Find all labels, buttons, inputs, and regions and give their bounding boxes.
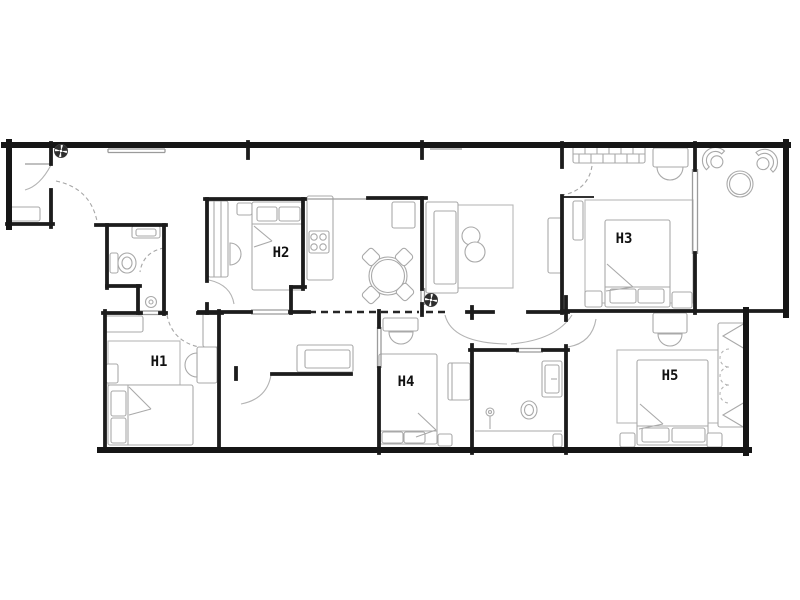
door-swing (241, 375, 271, 404)
furniture (707, 433, 722, 447)
furniture (638, 289, 664, 303)
chair-icon (185, 353, 197, 377)
furniture (197, 347, 217, 383)
furniture (653, 313, 687, 333)
furniture (392, 202, 415, 228)
furniture (573, 201, 583, 240)
furniture-circle (465, 242, 485, 262)
furniture-circle (311, 244, 317, 250)
furniture (305, 350, 350, 368)
door-swing (568, 319, 596, 347)
furniture (404, 432, 425, 443)
furniture-circle (311, 234, 317, 240)
furniture (111, 418, 126, 443)
door-swing-dashed (563, 166, 592, 195)
chair-icon (658, 334, 682, 346)
furniture (383, 318, 418, 331)
door-swing (25, 165, 51, 190)
door-swing-dashed (167, 315, 199, 347)
furniture (642, 428, 669, 442)
furniture (106, 364, 118, 383)
room-label-h4: H4 (398, 374, 415, 390)
furniture (610, 289, 636, 303)
rug (457, 205, 513, 288)
furniture (9, 207, 40, 221)
furniture (553, 434, 562, 447)
toilet-icon (525, 405, 534, 416)
furniture (434, 211, 456, 284)
furniture-circle (149, 300, 153, 304)
furniture (208, 201, 228, 277)
furniture (672, 292, 692, 308)
floorplan: H1H2H3H4H5 (0, 0, 800, 600)
furniture (110, 253, 118, 273)
furniture (279, 207, 300, 221)
room-label-h3: H3 (616, 231, 633, 247)
furniture (438, 434, 452, 446)
furniture (718, 323, 746, 427)
rug (108, 341, 180, 385)
chair-icon (389, 332, 413, 344)
room-label-h1: H1 (151, 354, 168, 370)
floorplan-svg: H1H2H3H4H5 (0, 0, 800, 600)
furniture (672, 428, 705, 442)
toilet-icon (122, 257, 132, 269)
room-label-h2: H2 (273, 245, 290, 261)
door-swing-dashed (140, 248, 164, 272)
furniture (105, 316, 143, 332)
door-swing (511, 315, 572, 344)
furniture (203, 313, 219, 347)
furniture (585, 291, 602, 307)
chair-icon (657, 167, 683, 180)
furniture (448, 363, 470, 400)
room-label-h5: H5 (662, 368, 679, 384)
ceiling-fan-icon (423, 292, 439, 308)
furniture (136, 229, 156, 236)
furniture (382, 432, 403, 443)
floorplan-page: H1H2H3H4H5 (0, 0, 800, 600)
furniture (237, 203, 252, 215)
chair-icon (230, 243, 241, 265)
door-swing (209, 280, 234, 304)
door-swing (445, 315, 507, 344)
furniture (653, 148, 688, 167)
furniture-circle (730, 174, 751, 195)
furniture (111, 391, 126, 416)
furniture-circle (320, 234, 326, 240)
furniture (620, 433, 635, 447)
furniture-circle (489, 411, 492, 414)
furniture-circle (320, 244, 326, 250)
balcony-chair-icon (750, 144, 783, 177)
furniture (257, 207, 277, 221)
door-swing-dashed (56, 181, 97, 221)
